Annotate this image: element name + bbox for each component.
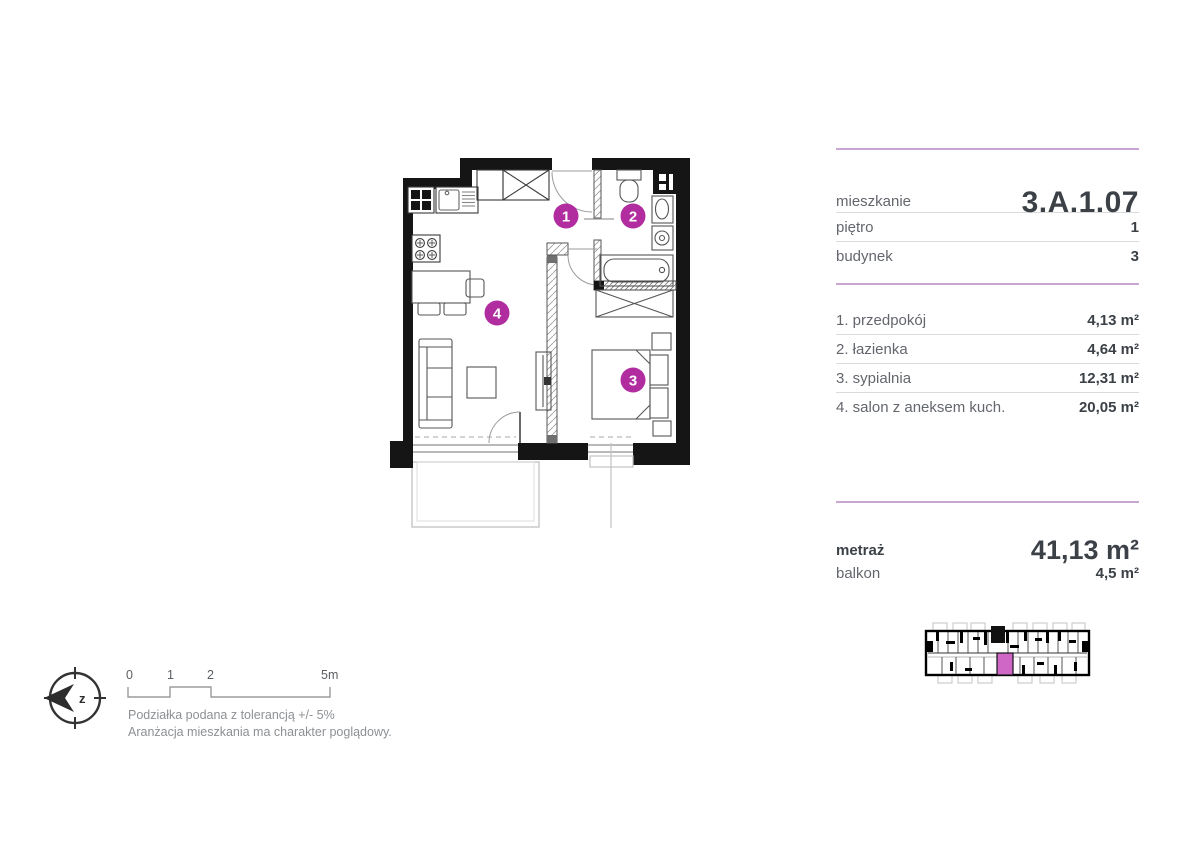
- scale-tick-2: 2: [207, 668, 214, 682]
- room-name: 1. przedpokój: [836, 312, 926, 329]
- sofa: [419, 339, 452, 428]
- wardrobe-hall: [503, 170, 549, 200]
- balcony-label: balkon: [836, 565, 880, 582]
- window-sill-bedroom: [590, 443, 633, 528]
- note-tolerance: Podziałka podana z tolerancją +/- 5%: [128, 707, 392, 724]
- room-marker-3: 3: [621, 368, 646, 393]
- divider-purple-mid: [836, 283, 1139, 285]
- room-marker-1: 1: [554, 204, 579, 229]
- salon: [419, 339, 551, 428]
- unit-number-value: 3.A.1.07: [1022, 186, 1139, 220]
- fridge-icon: [408, 187, 434, 213]
- scale-tick-3: 5m: [321, 668, 338, 682]
- building-row: budynek 3: [836, 242, 1139, 270]
- building-minimap: [926, 623, 1089, 683]
- room-row-4: 4. salon z aneksem kuch. 20,05 m²: [836, 393, 1139, 421]
- room-markers: 1 2 3 4: [485, 204, 646, 393]
- kitchen-island: [412, 271, 484, 315]
- room-list: 1. przedpokój 4,13 m² 2. łazienka 4,64 m…: [836, 306, 1139, 421]
- cabinet: [477, 170, 503, 200]
- scale-tick-0: 0: [126, 668, 133, 682]
- nightstand-bottom: [653, 421, 671, 436]
- minimap-core: [991, 626, 1005, 643]
- scale-bar: 0 1 2 5m: [126, 668, 338, 697]
- floor-value: 1: [1131, 219, 1139, 236]
- washing-machine-icon: [652, 226, 673, 250]
- scale-tick-1: 1: [167, 668, 174, 682]
- floor-plan: 1 2 3 4: [390, 158, 690, 528]
- building-label: budynek: [836, 248, 893, 265]
- svg-text:4: 4: [493, 306, 502, 323]
- shaft: [653, 170, 676, 194]
- toilet-icon: [617, 170, 641, 202]
- compass-label: z: [79, 691, 86, 706]
- disclaimer-notes: Podziałka podana z tolerancją +/- 5% Ara…: [128, 707, 392, 741]
- room-area: 20,05 m²: [1079, 399, 1139, 416]
- compass-icon: z: [44, 667, 106, 729]
- total-area-value: 41,13 m²: [1031, 535, 1139, 566]
- washbasin-icon: [652, 196, 673, 223]
- room-area: 4,13 m²: [1087, 312, 1139, 329]
- room-marker-2: 2: [621, 204, 646, 229]
- kitchen: [408, 170, 549, 315]
- building-value: 3: [1131, 248, 1139, 265]
- svg-text:1: 1: [562, 209, 570, 226]
- room-marker-4: 4: [485, 301, 510, 326]
- room-row-3: 3. sypialnia 12,31 m²: [836, 364, 1139, 392]
- total-area-label: metraż: [836, 542, 884, 559]
- balcony-value: 4,5 m²: [1096, 565, 1139, 582]
- unit-info-panel: mieszkanie 3.A.1.07 piętro 1 budynek 3 1…: [836, 140, 1139, 587]
- room-name: 4. salon z aneksem kuch.: [836, 399, 1005, 416]
- room-area: 4,64 m²: [1087, 341, 1139, 358]
- unit-number-row: mieszkanie 3.A.1.07: [836, 150, 1139, 202]
- balcony-door: [489, 412, 520, 443]
- divider-purple-bottom: [836, 501, 1139, 503]
- wardrobe-bedroom: [596, 290, 673, 317]
- note-arrangement: Aranżacja mieszkania ma charakter pogląd…: [128, 724, 392, 741]
- room-name: 2. łazienka: [836, 341, 908, 358]
- coffee-table: [467, 367, 496, 398]
- minimap-highlighted-unit: [997, 653, 1013, 675]
- room-row-1: 1. przedpokój 4,13 m²: [836, 306, 1139, 334]
- unit-label: mieszkanie: [836, 193, 911, 210]
- kitchen-sink: [436, 187, 478, 213]
- nightstand-top: [652, 333, 671, 350]
- floor-label: piętro: [836, 219, 874, 236]
- bedroom: [592, 290, 673, 436]
- outer-walls: [390, 158, 690, 468]
- svg-text:3: 3: [629, 373, 637, 390]
- total-area-row: metraż 41,13 m²: [836, 517, 1139, 557]
- balcony-outline: [412, 462, 539, 527]
- room-name: 3. sypialnia: [836, 370, 911, 387]
- room-row-2: 2. łazienka 4,64 m²: [836, 335, 1139, 363]
- svg-text:2: 2: [629, 209, 637, 226]
- stove-icon: [412, 235, 440, 262]
- room-area: 12,31 m²: [1079, 370, 1139, 387]
